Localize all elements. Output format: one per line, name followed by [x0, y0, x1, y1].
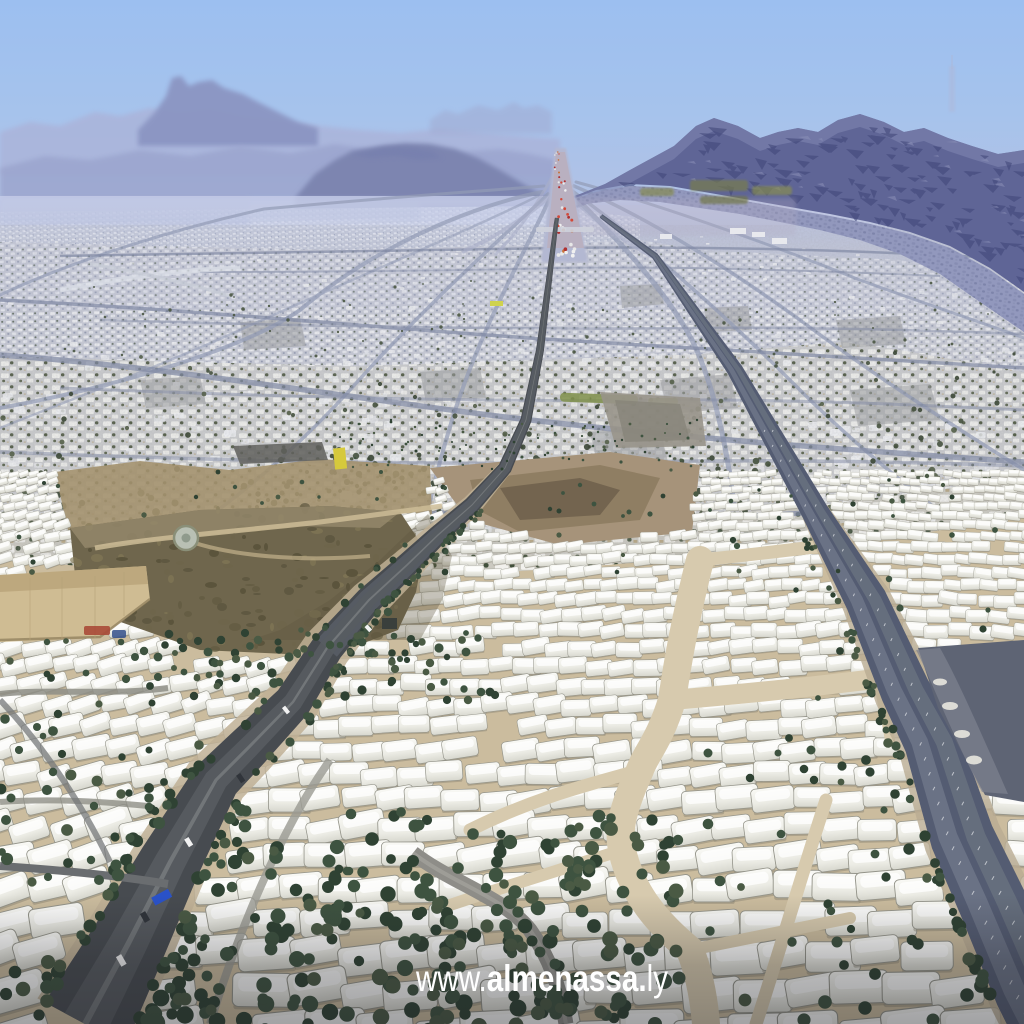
svg-text:www.almenassa.ly: www.almenassa.ly	[415, 958, 668, 999]
